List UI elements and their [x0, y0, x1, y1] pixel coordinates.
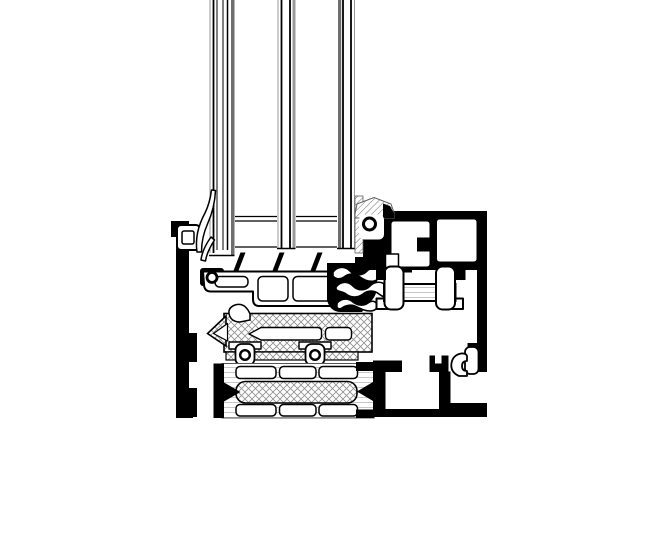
frame-chamber-large — [437, 220, 477, 262]
sill-hook-notch — [435, 356, 442, 364]
bar-cavity — [280, 405, 317, 417]
bar-cavity — [319, 405, 358, 417]
insulating-bar — [214, 362, 375, 418]
drawing-canvas — [0, 0, 648, 540]
bar-cavity — [319, 367, 358, 379]
bar-cavity — [280, 367, 317, 379]
insert-cavity-pointer — [249, 328, 322, 341]
technical-drawing — [0, 0, 648, 540]
foam-core — [236, 382, 357, 404]
bead-clip-cavity — [182, 231, 194, 244]
sash-chamber — [215, 277, 248, 288]
screw-boss — [364, 218, 376, 230]
hat-leg-left — [385, 267, 404, 310]
frame-grip-hook — [376, 267, 386, 280]
bar-cavity — [236, 367, 276, 379]
chamber-tab — [417, 238, 432, 252]
frame-grip-hook — [456, 267, 466, 280]
cross-section-svg — [0, 0, 648, 540]
bar-cavity — [236, 405, 276, 417]
sash-chamber — [258, 277, 288, 302]
sash-bottom-insert — [208, 304, 373, 365]
insert-cavity — [326, 328, 352, 341]
sill-base-flange — [450, 403, 487, 417]
corner-gasket-roller — [207, 273, 217, 283]
hat-leg-right — [436, 267, 455, 310]
